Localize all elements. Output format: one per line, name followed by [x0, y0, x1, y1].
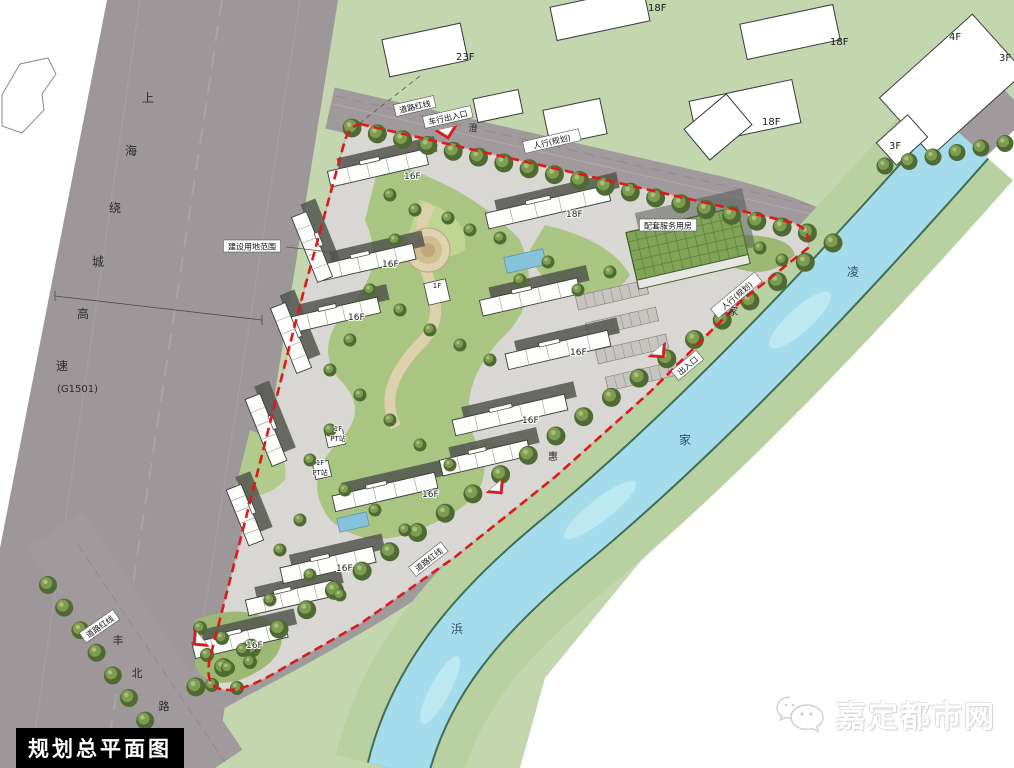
tree-icon — [274, 544, 287, 557]
tree-icon — [297, 600, 316, 619]
road-name-char-g1501: 绕 — [109, 201, 121, 215]
tree-icon — [334, 589, 347, 602]
tree-icon — [369, 504, 382, 517]
tree-icon — [384, 414, 397, 427]
tree-icon — [442, 212, 455, 225]
tree-icon — [120, 689, 138, 707]
plan-title-box: 规划总平面图 — [16, 728, 184, 768]
tree-icon — [221, 661, 235, 675]
small-building-label: PT站 — [312, 468, 328, 477]
tree-icon — [304, 454, 317, 467]
tree-icon — [399, 524, 412, 537]
floor-count-label: 16F — [246, 641, 263, 651]
road-name-char-fengbei: 丰 — [113, 634, 124, 647]
annotation-box: 建设用地范围 — [223, 240, 280, 252]
adjacent-building-label: 18F — [648, 3, 667, 14]
tree-icon — [339, 484, 352, 497]
tree-icon — [324, 364, 337, 377]
tree-icon — [344, 334, 357, 347]
tree-icon — [354, 389, 367, 402]
tree-icon — [547, 427, 566, 446]
tree-icon — [949, 144, 966, 161]
tree-icon — [436, 504, 455, 523]
tree-icon — [454, 339, 467, 352]
tree-icon — [768, 272, 787, 291]
tree-icon — [646, 188, 665, 207]
tree-icon — [973, 140, 990, 157]
small-building-label: 1F — [433, 282, 441, 290]
tree-icon — [409, 204, 422, 217]
tree-icon — [494, 232, 507, 245]
plan-title: 规划总平面图 — [28, 733, 172, 763]
road-code-g1501: (G1501) — [57, 384, 98, 395]
small-building-label: 1F — [316, 459, 324, 467]
floor-count-label: 16F — [382, 260, 399, 270]
road-name-char-g1501: 海 — [125, 143, 137, 158]
road-name-char-g1501: 高 — [77, 306, 89, 321]
svg-text:配套服务用房: 配套服务用房 — [644, 221, 692, 231]
adjacent-building-label: 4F — [949, 32, 961, 43]
adjacent-building-label: 3F — [889, 141, 901, 152]
tree-icon — [925, 149, 942, 166]
road-name-char-g1501: 城 — [92, 255, 104, 269]
tree-icon — [630, 369, 649, 388]
tree-icon — [514, 274, 527, 287]
floor-count-label: 18F — [566, 210, 583, 220]
road-name-char-fengbei: 路 — [159, 700, 170, 713]
floor-count-label: 16F — [404, 172, 421, 182]
tree-icon — [602, 388, 621, 407]
site-plan-map: 上海绕城高速(G1501)丰北路澄家惠凌家浜 道路红线道路红线道路红线建设用地范… — [0, 0, 1014, 768]
tree-icon — [444, 459, 457, 472]
river-name-char: 浜 — [451, 622, 463, 636]
floor-count-label: 16F — [348, 313, 365, 323]
road-name-char-riverside: 惠 — [548, 450, 558, 463]
road-name-char-fengbei: 北 — [132, 667, 143, 680]
tree-icon — [39, 576, 57, 594]
tree-icon — [414, 439, 427, 452]
tree-icon — [519, 446, 538, 465]
tree-icon — [464, 224, 477, 237]
floor-count-label: 16F — [336, 564, 353, 574]
tree-icon — [901, 153, 918, 170]
pond-outline — [2, 58, 56, 133]
small-building-label: 1F — [334, 425, 342, 433]
tree-icon — [463, 484, 482, 503]
river-name-char: 凌 — [847, 265, 859, 279]
small-building-label: PT站 — [330, 434, 346, 443]
tree-icon — [754, 242, 767, 255]
tree-icon — [877, 158, 894, 175]
adjacent-building-label: 3F — [999, 53, 1011, 64]
road-name-char-g1501: 上 — [142, 91, 154, 105]
tree-icon — [824, 234, 843, 253]
tree-icon — [186, 677, 205, 696]
floor-count-label: 16F — [522, 416, 539, 426]
tree-icon — [88, 644, 106, 662]
adjacent-building-label: 18F — [830, 37, 849, 48]
chat-bubbles-icon — [776, 693, 828, 735]
tree-icon — [621, 183, 640, 202]
tree-icon — [270, 620, 289, 639]
tree-icon — [55, 599, 73, 617]
tree-icon — [380, 542, 399, 561]
road-name-char-g1501: 速 — [56, 359, 68, 373]
tree-icon — [394, 304, 407, 317]
tree-icon — [304, 569, 317, 582]
tree-icon — [997, 135, 1014, 152]
watermark-text: 嘉定都市网 — [836, 692, 996, 736]
tree-icon — [424, 324, 437, 337]
tree-icon — [364, 284, 377, 297]
tree-icon — [205, 678, 219, 692]
tree-icon — [776, 254, 789, 267]
adjacent-building-label: 18F — [762, 117, 781, 128]
watermark: 嘉定都市网 — [776, 692, 996, 736]
tree-icon — [294, 514, 307, 527]
tree-icon — [264, 594, 277, 607]
tree-icon — [574, 407, 593, 426]
tree-icon — [572, 284, 585, 297]
svg-text:建设用地范围: 建设用地范围 — [228, 242, 276, 252]
annotation-box: 配套服务用房 — [639, 219, 696, 231]
tree-icon — [243, 655, 257, 669]
river-name-char: 家 — [679, 432, 691, 447]
tree-icon — [389, 234, 402, 247]
tree-icon — [604, 266, 617, 279]
tree-icon — [796, 253, 815, 272]
tree-icon — [353, 562, 372, 581]
tree-icon — [343, 119, 362, 138]
tree-icon — [484, 354, 497, 367]
tree-icon — [104, 666, 122, 684]
tree-icon — [542, 256, 555, 269]
adjacent-building-label: 23F — [456, 52, 475, 63]
floor-count-label: 16F — [570, 348, 587, 358]
tree-icon — [136, 712, 154, 730]
floor-count-label: 16F — [422, 490, 439, 500]
site-plan-page: 上海绕城高速(G1501)丰北路澄家惠凌家浜 道路红线道路红线道路红线建设用地范… — [0, 0, 1014, 768]
road-name-char-north: 澄 — [468, 122, 477, 134]
tree-icon — [384, 189, 397, 202]
